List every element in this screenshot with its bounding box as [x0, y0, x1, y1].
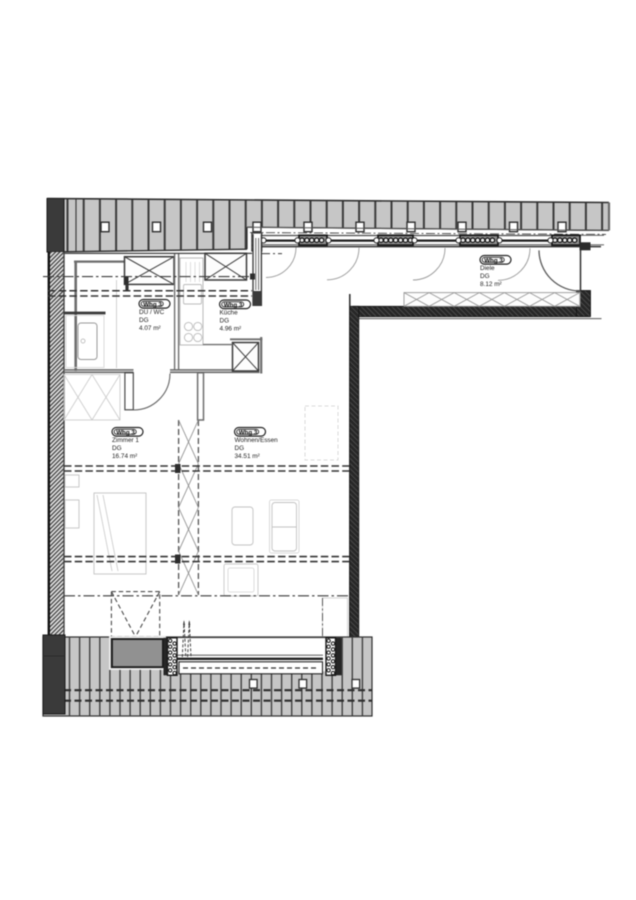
svg-text:Diele: Diele [480, 265, 495, 272]
svg-text:4.96 m²: 4.96 m² [220, 326, 242, 333]
svg-text:16.74 m²: 16.74 m² [112, 453, 137, 460]
svg-text:Küche: Küche [220, 310, 239, 317]
svg-text:8.12 m²: 8.12 m² [480, 281, 502, 288]
svg-text:DG: DG [220, 318, 230, 325]
svg-text:Zimmer 1: Zimmer 1 [112, 437, 139, 444]
svg-text:Whg 3: Whg 3 [143, 301, 162, 308]
svg-text:Whg 3: Whg 3 [484, 257, 503, 264]
svg-text:DG: DG [112, 445, 122, 452]
svg-text:4.07 m²: 4.07 m² [139, 325, 161, 332]
svg-text:DU / WC: DU / WC [139, 309, 165, 316]
svg-text:34.51 m²: 34.51 m² [235, 453, 260, 460]
svg-text:Whg 3: Whg 3 [116, 429, 135, 436]
svg-text:DG: DG [139, 317, 149, 324]
svg-text:DG: DG [235, 445, 245, 452]
svg-text:DG: DG [480, 273, 490, 280]
svg-text:Whg 3: Whg 3 [239, 429, 258, 436]
svg-text:Wohnen/Essen: Wohnen/Essen [235, 437, 279, 444]
svg-text:Whg 3: Whg 3 [224, 302, 243, 309]
